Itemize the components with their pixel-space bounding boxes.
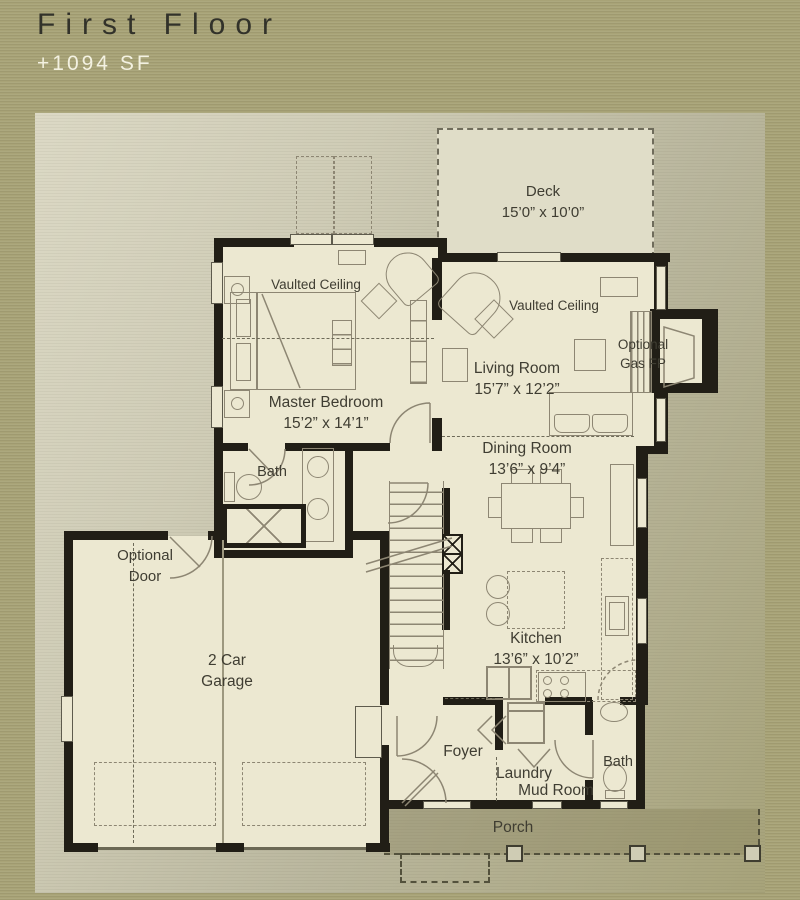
wall (432, 418, 442, 451)
fireplace-line1: Optional (618, 337, 668, 352)
dining-chair (511, 528, 533, 543)
burner (560, 676, 569, 685)
toilet-tank (224, 472, 235, 502)
porch-label: Porch (493, 817, 534, 838)
living-room-name: Living Room (474, 360, 560, 377)
garage-door-panel (242, 762, 366, 826)
laundry-label-line2: Mud Room (518, 780, 594, 801)
porch-area (384, 809, 760, 855)
burner (543, 689, 552, 698)
deck-dims: 15’0” x 10’0” (502, 204, 585, 221)
wall-table (338, 250, 366, 265)
refrigerator-door-line (508, 667, 510, 699)
wall (214, 238, 294, 247)
wall (285, 443, 390, 451)
porch-post (629, 845, 646, 862)
fireplace-label: Optional Gas FP (618, 336, 668, 373)
living-room-dims: 15’7” x 12’2” (474, 381, 559, 398)
window (211, 386, 223, 428)
window (211, 262, 223, 304)
sofa-cushion (592, 414, 628, 433)
coffee-table (574, 339, 606, 371)
dining-table (501, 483, 571, 529)
wall (64, 531, 73, 852)
window (532, 801, 562, 809)
page-title: First Floor (37, 8, 282, 42)
master-bath-label: Bath (257, 462, 287, 482)
living-room-label: Living Room 15’7” x 12’2” (474, 358, 560, 401)
cased-opening-line (445, 698, 495, 699)
console-table (600, 277, 638, 297)
garage-line1: 2 Car (208, 652, 246, 669)
staircase (389, 481, 444, 669)
bed-headboard-line (256, 293, 258, 389)
living-vaulted-label: Vaulted Ceiling (509, 297, 599, 316)
dining-chair (540, 528, 562, 543)
structural-post (442, 553, 463, 574)
wall (432, 258, 442, 320)
pillow (236, 343, 251, 381)
burner (560, 689, 569, 698)
wall (216, 843, 244, 852)
living-dining-divider-line (442, 436, 634, 437)
wall (64, 843, 98, 852)
kitchen-sink-basin (609, 602, 625, 630)
french-door-sill (332, 234, 374, 245)
garage-door-panel (94, 762, 216, 826)
kitchen-label: Kitchen 13’6” x 10’2” (493, 628, 578, 671)
stool (486, 602, 510, 626)
window (61, 696, 73, 742)
master-bedroom-label: Master Bedroom 15’2” x 14’1” (269, 392, 384, 435)
burner (543, 676, 552, 685)
wall (636, 700, 645, 809)
window (656, 266, 666, 310)
wall (585, 700, 593, 735)
porch-post (744, 845, 761, 862)
window (497, 252, 561, 262)
optional-door-line2: Door (129, 568, 162, 585)
wall (380, 531, 389, 705)
fireplace-line2: Gas FP (620, 356, 666, 371)
sink (307, 456, 329, 478)
window (423, 801, 471, 809)
deck-label: Deck 15’0” x 10’0” (502, 182, 585, 223)
dining-room-name: Dining Room (482, 440, 572, 457)
wall (380, 745, 389, 849)
floor-plan-page: { "header": { "title": "First Floor", "a… (0, 0, 800, 900)
dining-room-dims: 13’6” x 9’4” (489, 461, 566, 478)
dining-chair (488, 497, 502, 518)
window (656, 398, 666, 442)
kitchen-dims: 13’6” x 10’2” (493, 651, 578, 668)
french-door-leaf (334, 156, 372, 234)
bath2-label: Bath (603, 752, 633, 772)
dresser (410, 300, 427, 384)
optional-door-label: Optional Door (117, 546, 173, 587)
buffet-cabinet (610, 464, 634, 546)
french-door-sill (290, 234, 332, 245)
wall (345, 443, 353, 558)
bed-bench (332, 320, 352, 366)
area-subtitle: +1094 SF (37, 52, 153, 76)
dining-chair (570, 497, 584, 518)
entry-closet (355, 706, 382, 758)
lamp (231, 397, 244, 410)
wall (374, 238, 447, 247)
washer-lid-line (509, 710, 543, 712)
wall (64, 531, 168, 540)
kitchen-name: Kitchen (510, 630, 562, 647)
washer (507, 702, 545, 744)
bath-sink (600, 702, 628, 722)
porch-steps (400, 853, 490, 883)
foyer-label: Foyer (443, 741, 483, 762)
master-bedroom-dims: 15’2” x 14’1” (283, 415, 368, 432)
garage-label: 2 Car Garage (201, 650, 253, 693)
window (637, 478, 647, 528)
deck-name: Deck (526, 183, 560, 200)
french-door-leaf (296, 156, 334, 234)
side-table (442, 348, 468, 382)
window (637, 598, 647, 644)
shower (222, 504, 306, 548)
stair-rail-curve (393, 645, 438, 667)
optional-door-line1: Optional (117, 547, 173, 564)
wall (214, 443, 248, 451)
dining-room-label: Dining Room 13’6” x 9’4” (482, 438, 572, 481)
vaulted-ceiling-line (222, 338, 434, 339)
garage-door-sill (98, 847, 216, 850)
garage-door-sill (244, 847, 366, 850)
pillow (236, 299, 251, 337)
window (600, 801, 628, 809)
stool (486, 575, 510, 599)
porch-post (506, 845, 523, 862)
master-bedroom-name: Master Bedroom (269, 394, 384, 411)
structural-post (442, 534, 463, 555)
wall (495, 700, 503, 750)
wall (440, 253, 497, 262)
sofa-cushion (554, 414, 590, 433)
wall (214, 550, 353, 558)
garage-line2: Garage (201, 673, 253, 690)
sink (307, 498, 329, 520)
kitchen-island (507, 571, 565, 629)
master-vaulted-label: Vaulted Ceiling (271, 276, 361, 295)
toilet-base (605, 790, 625, 799)
